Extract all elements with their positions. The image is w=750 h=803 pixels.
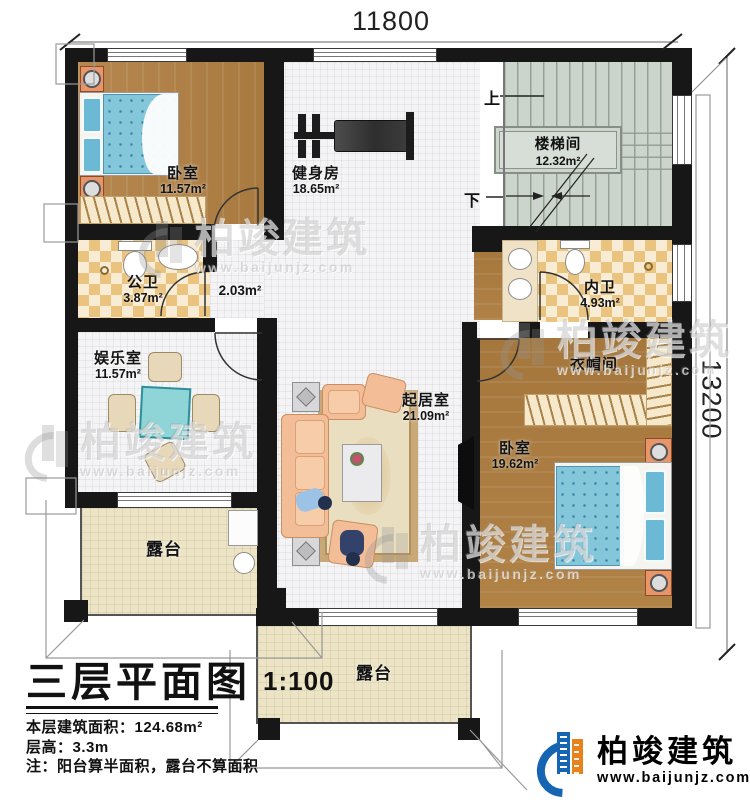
gym-bench [334, 120, 408, 152]
watermark-logo-icon [26, 425, 72, 477]
pillow [82, 97, 102, 133]
sink [508, 248, 532, 270]
stair-down-label: 下 [464, 187, 480, 211]
wardrobe [524, 394, 648, 426]
room-label-living: 起居室 21.09m² [402, 392, 450, 424]
pendant-lamp [100, 266, 109, 275]
wall [232, 492, 257, 508]
chair [148, 352, 182, 382]
area-calculation-note: 注：阳台算半面积，露台不算面积 [26, 755, 259, 776]
pillow [644, 518, 666, 562]
room-label-bedroom2: 卧室 19.62m² [492, 440, 539, 472]
brand-name: 柏竣建筑 [597, 734, 750, 770]
sink [508, 278, 532, 300]
toilet-bowl [565, 249, 585, 275]
wall [472, 240, 502, 252]
watermark: 柏竣建筑 www.baijunjz.com [140, 218, 370, 275]
nightstand [80, 66, 104, 92]
wall [438, 608, 518, 626]
barbell-bar [294, 132, 336, 139]
room-label-bedroom1: 卧室 11.57m² [160, 165, 206, 197]
parapet-post [64, 600, 88, 622]
wall [257, 332, 277, 608]
room-label-recreation: 娱乐室 11.57m² [94, 350, 142, 382]
watermark: 柏竣建筑 www.baijunjz.com [502, 320, 732, 377]
person-head [346, 552, 360, 566]
wall [472, 226, 692, 240]
window [518, 608, 638, 626]
barbell-plate [312, 114, 320, 132]
plan-title: 三层平面图1:100 [26, 662, 335, 703]
window [107, 48, 187, 62]
parapet-post [458, 718, 480, 740]
sink [233, 552, 255, 574]
bed-blanket [142, 94, 178, 174]
window [318, 608, 438, 626]
watermark-logo-icon [366, 527, 412, 579]
room-label-hallway: 2.03m² [219, 283, 262, 299]
barbell-plate [312, 140, 320, 158]
sofa-cushion [295, 420, 325, 454]
toilet-tank [560, 240, 590, 249]
window [672, 95, 692, 165]
floor-plan-canvas: 11800 13200 楼梯间 12.32m² 上 下 [0, 0, 750, 803]
plan-scale: 1:100 [263, 666, 335, 696]
room-label-terrace-bottom: 露台 [356, 664, 392, 684]
room-label-gym: 健身房 18.65m² [292, 165, 340, 197]
room-label-terrace-left: 露台 [146, 540, 182, 560]
brand-website: www.baijunjz.com [597, 770, 750, 786]
barbell-plate [298, 114, 306, 132]
table-flowers [350, 452, 364, 466]
pendant-lamp [644, 262, 653, 271]
wall [65, 318, 215, 332]
window [313, 48, 437, 62]
side-table [292, 382, 320, 412]
parapet-post [258, 718, 280, 740]
window [117, 492, 232, 508]
pillow [82, 137, 102, 173]
coffee-table [342, 444, 382, 502]
parapet-post [258, 588, 286, 610]
gym-bench-foot [406, 112, 414, 160]
wall [256, 608, 318, 626]
brand-logo-icon [538, 732, 590, 788]
stair-up-label: 上 [484, 85, 500, 109]
stairwell-name: 楼梯间 [535, 133, 582, 154]
floor-height-note: 层高：3.3m [26, 736, 109, 757]
title-underline [26, 706, 218, 714]
person-head [318, 496, 332, 510]
nightstand [645, 570, 672, 596]
wall [638, 608, 692, 626]
sofa-cushion [295, 456, 325, 490]
dimension-width-label: 11800 [352, 6, 430, 37]
linen-closet [474, 250, 502, 320]
building-area-note: 本层建筑面积：124.68m² [26, 716, 203, 737]
wall [462, 322, 477, 338]
brand-logo: 柏竣建筑 www.baijunjz.com [538, 732, 750, 788]
window [672, 244, 692, 302]
tv [458, 436, 474, 510]
armchair-cushion [328, 390, 360, 414]
stairwell-label-box: 楼梯间 12.32m² [494, 126, 622, 174]
wall [264, 48, 284, 240]
stairwell-area: 12.32m² [536, 154, 581, 168]
wall [257, 318, 277, 332]
watermark-logo-icon [140, 221, 186, 273]
watermark-logo-icon [502, 323, 548, 375]
wash-stand [228, 510, 258, 546]
room-label-public-bath: 公卫 3.87m² [123, 274, 163, 306]
side-table [292, 536, 320, 566]
barbell-plate [298, 140, 306, 158]
wall [78, 492, 117, 508]
watermark: 柏竣建筑 www.baijunjz.com [366, 524, 596, 581]
room-label-ensuite-bath: 内卫 4.93m² [580, 279, 620, 311]
watermark: 柏竣建筑 www.baijunjz.com [26, 422, 256, 479]
pillow [644, 470, 666, 514]
